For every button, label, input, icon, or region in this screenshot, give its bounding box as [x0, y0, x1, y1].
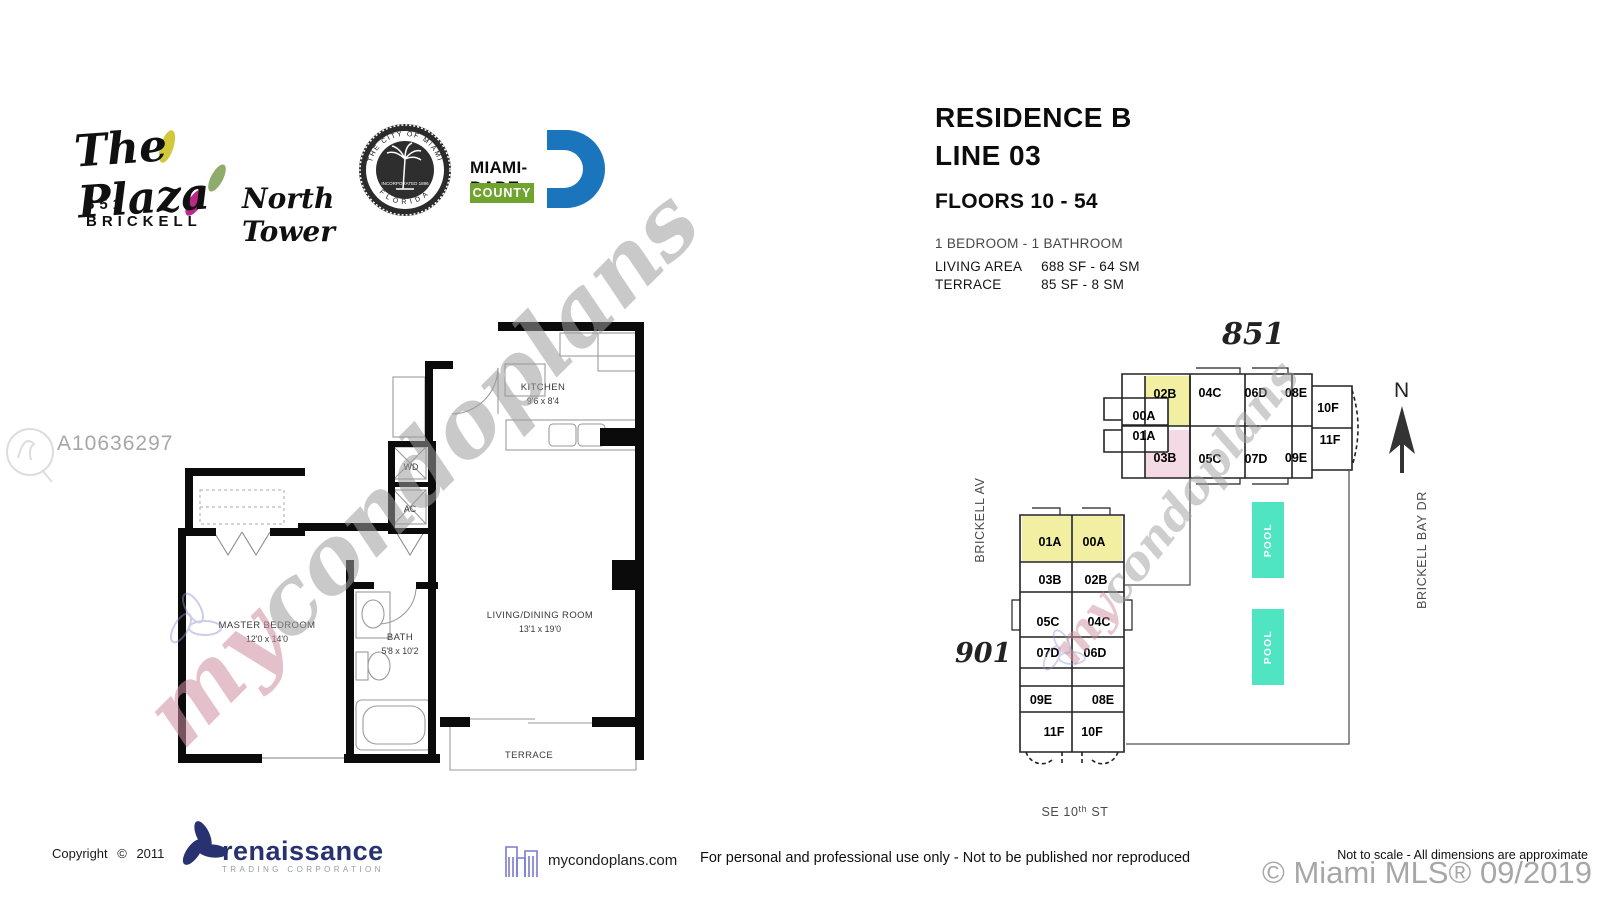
copyright-text: Copyright © 2011: [52, 846, 164, 861]
seal-banner-text: INCORPORATED 1896: [381, 181, 429, 186]
unit-label: 04C: [1199, 386, 1222, 400]
toilet-tank: [356, 652, 368, 680]
bed-bath-count: 1 BEDROOM - 1 BATHROOM: [935, 236, 1140, 251]
mycondoplans-site-text: mycondoplans.com: [548, 852, 677, 869]
unit-label: 02B: [1154, 387, 1177, 401]
terrace-area-row: TERRACE 85 SF - 8 SM: [935, 277, 1140, 292]
bath-dim: 5'8 x 10'2: [381, 646, 418, 656]
unit-label: 01A: [1133, 429, 1156, 443]
pool-south-label: POOL: [1263, 630, 1274, 664]
north-label: N: [1394, 379, 1409, 402]
unit-label: 10F: [1317, 401, 1339, 415]
bathtub: [356, 700, 432, 750]
bath-label: BATH: [387, 632, 413, 643]
plan-drawing: KITCHEN 9'6 x 8'4 WD AC MASTER BEDROOM 1…: [0, 0, 1600, 912]
miami-dade-d-icon: [547, 130, 605, 208]
living-area-row: LIVING AREA 688 SF - 64 SM: [935, 259, 1140, 274]
living-dining-label: LIVING/DINING ROOM: [487, 610, 593, 621]
unit-label: 03B: [1039, 573, 1062, 587]
unit-label: 11F: [1044, 725, 1065, 739]
unit-label: 09E: [1285, 451, 1307, 465]
unit-label: 00A: [1133, 409, 1156, 423]
unit-label: 08E: [1092, 693, 1114, 707]
residence-info: RESIDENCE B LINE 03 FLOORS 10 - 54 1 BED…: [935, 102, 1140, 292]
terrace-outline: [450, 727, 636, 770]
bathtub-inner: [363, 706, 425, 744]
terrace-label: TERRACE: [505, 750, 553, 761]
scale-disclaimer: Not to scale - All dimensions are approx…: [1337, 848, 1588, 862]
toilet-bowl: [368, 652, 390, 680]
living-dining-dim: 13'1 x 19'0: [519, 624, 561, 634]
pool-north-label: POOL: [1263, 523, 1274, 557]
floor-plan-sheet: { "watermarks": { "listing_id": "A106362…: [0, 0, 1600, 912]
street-brickell-bay-dr: BRICKELL BAY DR: [1415, 491, 1429, 609]
listing-id-watermark: A10636297: [57, 432, 173, 456]
renaissance-name: renaissance: [222, 836, 384, 867]
building-901-label: 901: [955, 638, 1011, 669]
city-of-miami-seal: THE CITY OF MIAMI FLORIDA INCORPORATED 1…: [359, 124, 451, 216]
street-se-10th-st: SE 10th ST: [1041, 804, 1108, 819]
unit-label: 01A: [1039, 535, 1062, 549]
line-number: LINE 03: [935, 140, 1140, 172]
north-arrow-stem: [1400, 443, 1404, 473]
unit-label: 03B: [1154, 451, 1177, 465]
renaissance-subtitle: TRADING CORPORATION: [222, 865, 384, 874]
miami-dade-county-badge: COUNTY: [470, 183, 534, 203]
bath-door-arc: [380, 589, 416, 624]
terrace-area-value: 85 SF - 8 SM: [1041, 277, 1124, 292]
floors-range: FLOORS 10 - 54: [935, 190, 1140, 214]
living-area-value: 688 SF - 64 SM: [1041, 259, 1140, 274]
plaza-address: 851 BRICKELL: [86, 196, 202, 230]
mycondoplans-logo-icon: [506, 847, 537, 877]
usage-disclaimer: For personal and professional use only -…: [700, 850, 1190, 866]
residence-title: RESIDENCE B: [935, 102, 1140, 134]
terrace-area-label: TERRACE: [935, 277, 1037, 292]
unit-label: 00A: [1083, 535, 1106, 549]
street-brickell-av: BRICKELL AV: [973, 477, 987, 562]
kitchen-sink-left: [549, 424, 576, 446]
north-tower-label: North Tower: [242, 182, 335, 248]
renaissance-logo: renaissance TRADING CORPORATION: [222, 836, 384, 874]
sketch-watermark-icon: [7, 429, 53, 482]
unit-label: 10F: [1081, 725, 1103, 739]
living-area-label: LIVING AREA: [935, 259, 1037, 274]
unit-label: 11F: [1320, 433, 1341, 447]
